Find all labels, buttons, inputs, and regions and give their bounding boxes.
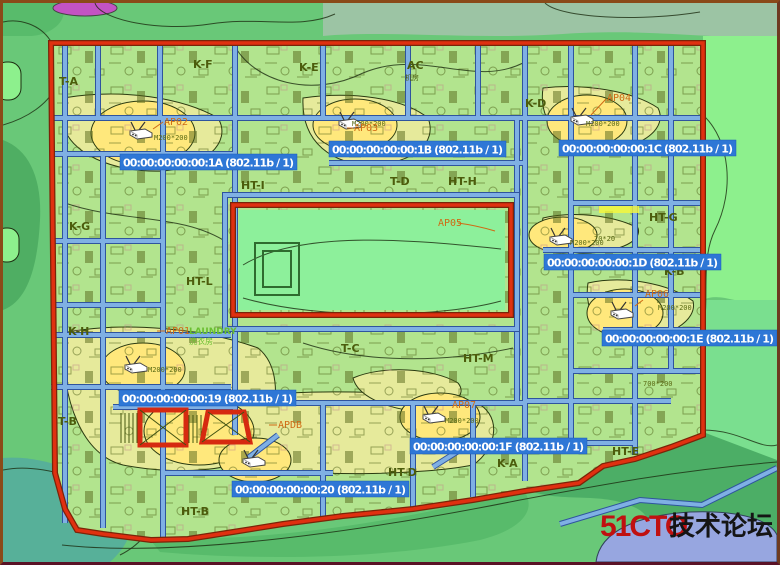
svg-text:00:00:00:00:00:19 (802.11b / 1: 00:00:00:00:00:19 (802.11b / 1) xyxy=(122,393,293,406)
highlight-mark xyxy=(599,206,639,213)
dim-text: 70*20 xyxy=(594,235,615,243)
ap-mac-label: 00:00:00:00:00:20 (802.11b / 1) xyxy=(232,481,409,497)
room-label: K-H xyxy=(68,325,89,338)
ap-mac-label: 00:00:00:00:00:1E (802.11b / 1) xyxy=(602,330,777,346)
room-label: HT-H xyxy=(448,175,477,188)
svg-text:00:00:00:00:00:1C (802.11b / 1: 00:00:00:00:00:1C (802.11b / 1) xyxy=(562,143,733,156)
coverage-map: AP05 M200*200 M200*200 xyxy=(3,3,777,562)
svg-text:00:00:00:00:00:1E (802.11b / 1: 00:00:00:00:00:1E (802.11b / 1) xyxy=(605,333,774,346)
room-sublabel: 机房 xyxy=(405,73,419,82)
dim-text: M200*200 xyxy=(586,120,620,128)
svg-text:00:00:00:00:00:1A (802.11b / 1: 00:00:00:00:00:1A (802.11b / 1) xyxy=(123,157,294,170)
room-label: K-E xyxy=(299,61,319,74)
ap-tag: APDB xyxy=(278,420,302,431)
room-label: HT-D xyxy=(388,466,417,479)
room-label: HT-E xyxy=(612,445,639,458)
ap-tag: AP07 xyxy=(452,400,476,411)
room-label: HT-G xyxy=(649,211,678,224)
dim-text: M200*200 xyxy=(658,304,692,312)
ap-mac-label: 00:00:00:00:00:1C (802.11b / 1) xyxy=(559,140,736,156)
room-label: HT-M xyxy=(463,352,494,365)
ap-tag: AP04 xyxy=(607,93,631,104)
svg-text:00:00:00:00:00:20 (802.11b / 1: 00:00:00:00:00:20 (802.11b / 1) xyxy=(235,484,406,497)
courtyard: AP05 xyxy=(225,195,517,329)
room-label: K-F xyxy=(193,58,213,71)
laundry-note-cn: 洗衣房 xyxy=(189,336,213,346)
room-label: K-D xyxy=(525,97,546,110)
dim-text: M200*200 xyxy=(154,134,188,142)
ap-tag: AP06 xyxy=(645,289,669,300)
dim-text: 700*200 xyxy=(643,380,673,388)
room-label: AC xyxy=(407,59,424,72)
ap-tag: AP03 xyxy=(354,123,378,134)
svg-text:00:00:00:00:00:1F (802.11b / 1: 00:00:00:00:00:1F (802.11b / 1) xyxy=(413,441,584,454)
room-label: T-D xyxy=(390,175,410,188)
dim-text: M200*200 xyxy=(148,366,182,374)
room-label: T-C xyxy=(341,342,360,355)
watermark-forum-text: 技术论坛 xyxy=(669,512,773,542)
svg-text:00:00:00:00:00:1D (802.11b / 1: 00:00:00:00:00:1D (802.11b / 1) xyxy=(547,257,718,270)
ap-mac-label: 00:00:00:00:00:19 (802.11b / 1) xyxy=(119,390,296,406)
room-label: HT-B xyxy=(181,505,209,518)
room-label: HT-I xyxy=(241,179,265,192)
ap-mac-label: 00:00:00:00:00:1A (802.11b / 1) xyxy=(120,154,297,170)
room-label: T-A xyxy=(59,75,78,88)
ap-mac-label: 00:00:00:00:00:1F (802.11b / 1) xyxy=(410,438,587,454)
room-label: HT-L xyxy=(186,275,213,288)
ap-mac-label: 00:00:00:00:00:1D (802.11b / 1) xyxy=(544,254,721,270)
ap-tag: AP02 xyxy=(164,117,188,128)
ap-mac-label: 00:00:00:00:00:1B (802.11b / 1) xyxy=(329,141,506,157)
svg-text:00:00:00:00:00:1B (802.11b / 1: 00:00:00:00:00:1B (802.11b / 1) xyxy=(332,144,503,157)
room-label: T-B xyxy=(58,415,77,428)
watermark: 51CTO 技术论坛 xyxy=(600,510,773,543)
room-label: K-A xyxy=(497,457,518,470)
dim-text: M200*200 xyxy=(445,417,479,425)
laundry-note: LAUNDRY xyxy=(189,327,237,337)
ap-tag: AP01 xyxy=(166,326,190,337)
floor-plan-screenshot: AP05 M200*200 M200*200 xyxy=(0,0,780,565)
room-label: K-G xyxy=(69,220,90,233)
